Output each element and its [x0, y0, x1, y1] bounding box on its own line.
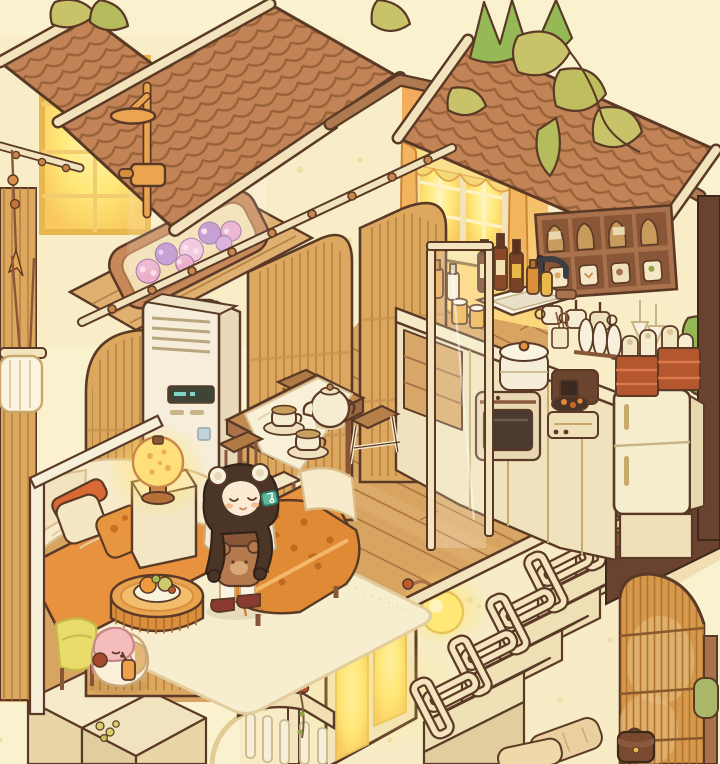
fridge[interactable] — [614, 390, 704, 558]
food-pan — [552, 396, 588, 412]
handbag[interactable] — [618, 729, 654, 762]
crate — [658, 348, 700, 390]
shower-valve — [131, 164, 165, 186]
girl-shoe — [237, 594, 260, 608]
glass-divider — [427, 242, 493, 550]
game-scene: Cozy isometric home interior — bath nook… — [0, 0, 720, 764]
shower-head — [111, 109, 155, 124]
rice-cooker[interactable] — [500, 342, 548, 390]
bonnet-rosette — [93, 653, 107, 667]
soap-bar — [556, 290, 576, 299]
bag-clasp — [633, 747, 639, 753]
sconce-flower — [403, 579, 413, 589]
music-note-clip — [261, 490, 278, 506]
coffee-machine[interactable] — [548, 370, 598, 438]
crate — [616, 356, 658, 396]
wall-shelf[interactable] — [535, 205, 677, 298]
girl-shoe — [211, 598, 234, 612]
